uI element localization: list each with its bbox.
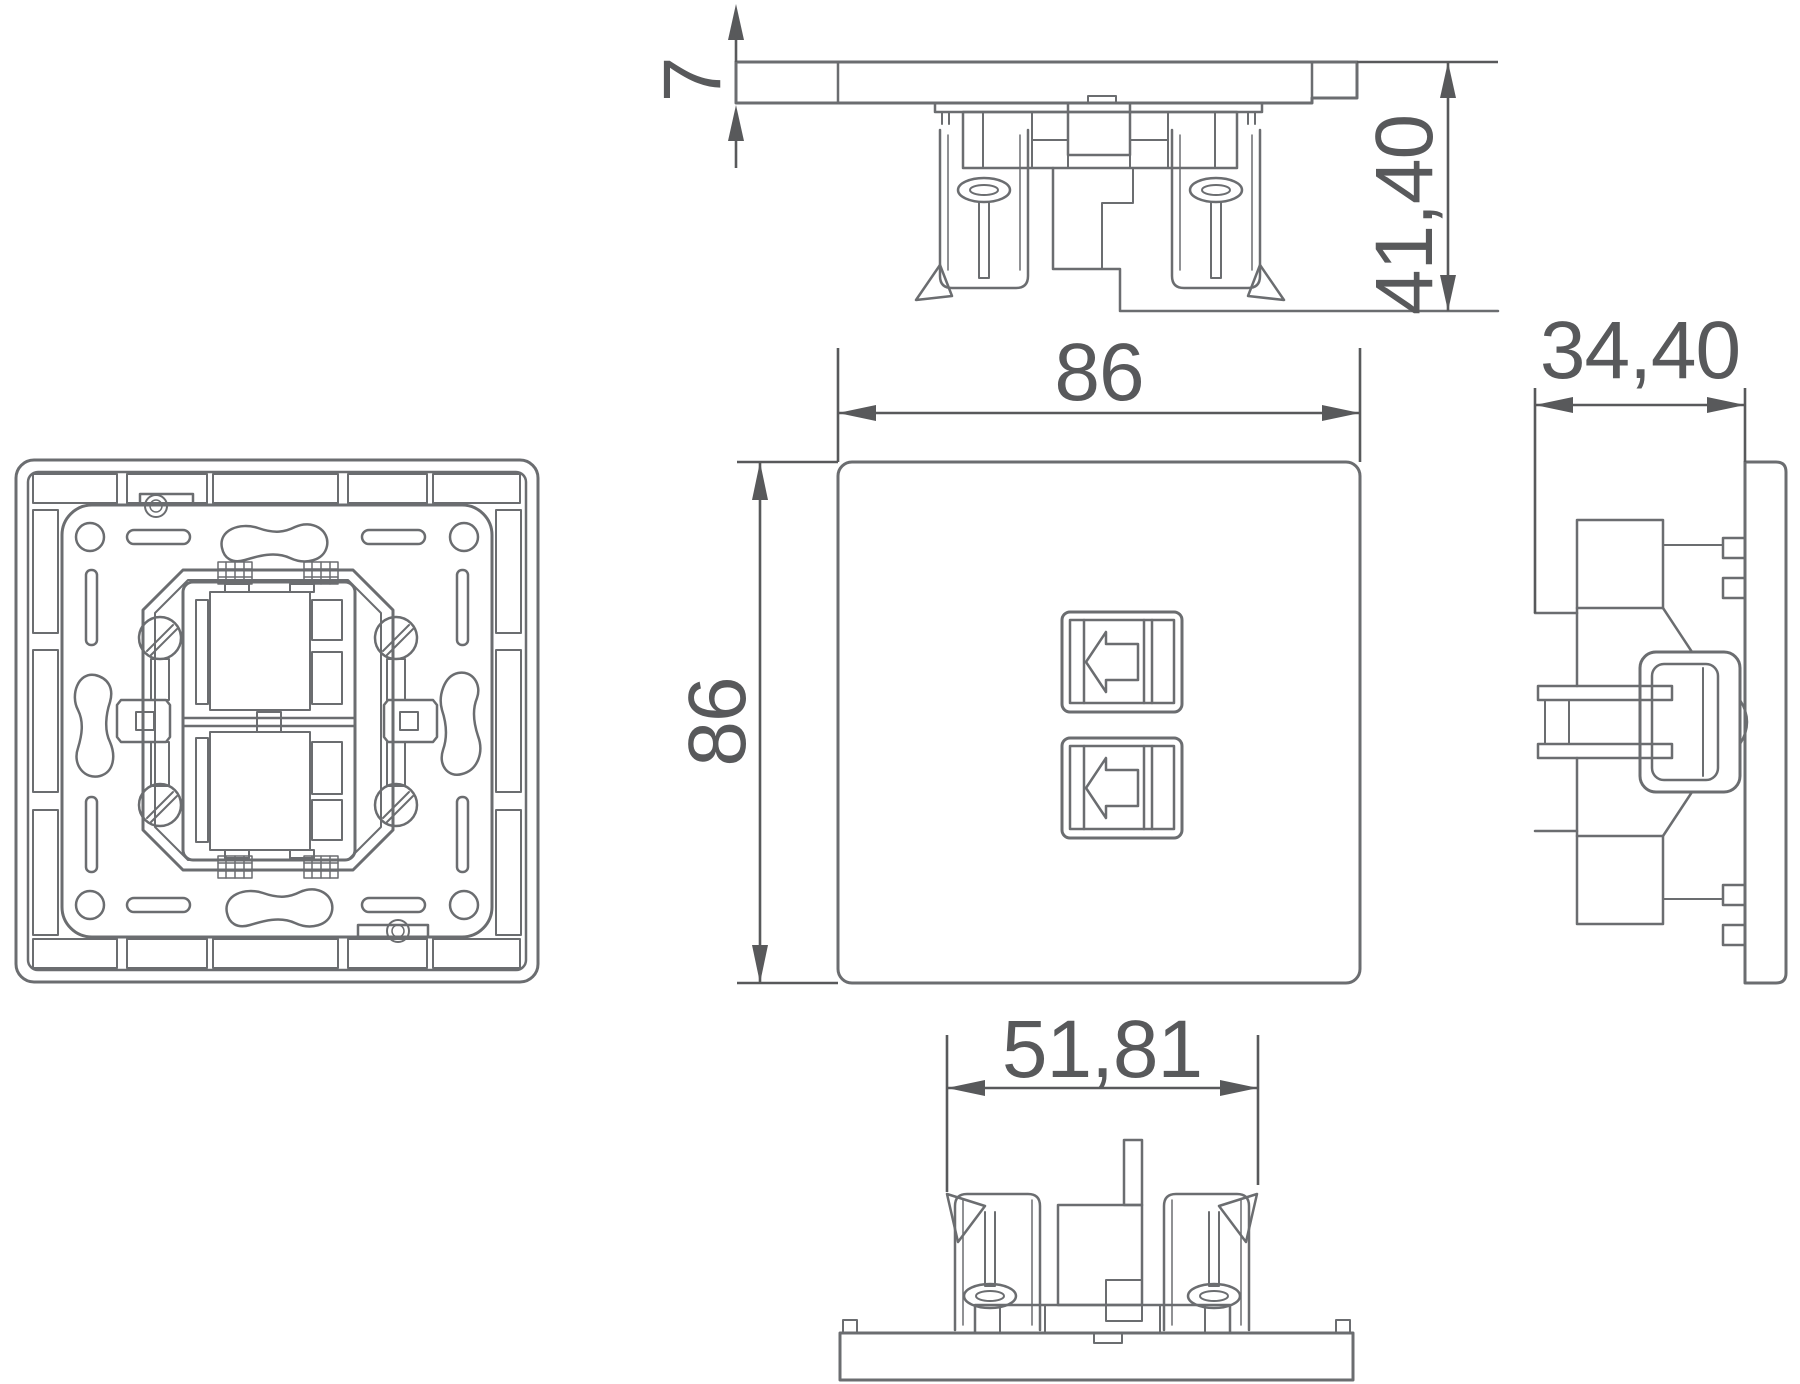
- dim-mount-depth: 41,40: [1357, 62, 1498, 315]
- back-view-hatch-tabs: [218, 562, 338, 878]
- left-arrow-icon: [1086, 758, 1138, 818]
- dim-plate-width: 86: [838, 327, 1360, 462]
- dim-label-plate-width: 86: [1054, 327, 1143, 418]
- side-view-plate: [1745, 462, 1786, 983]
- side-view: [1535, 462, 1786, 983]
- dim-label-claw-span: 51,81: [1002, 1004, 1202, 1095]
- switch-dimension-drawing: 7 41,40: [0, 0, 1800, 1384]
- dim-claw-span: 51,81: [947, 1004, 1258, 1192]
- bottom-view-center-block: [1058, 1205, 1142, 1305]
- dim-label-total-depth: 34,40: [1540, 305, 1740, 396]
- side-view-cam-head: [1640, 652, 1740, 792]
- top-view-claw-right: [1172, 130, 1284, 300]
- dim-label-plate-thickness: 7: [647, 58, 738, 103]
- side-view-body-upper: [1577, 520, 1663, 608]
- back-view-cams: [117, 700, 437, 742]
- rocker-button-up: [1062, 612, 1182, 712]
- bottom-view-plate: [840, 1333, 1353, 1380]
- dim-plate-height: 86: [672, 462, 838, 983]
- front-view: [838, 462, 1360, 983]
- bottom-view-claw-right: [1164, 1194, 1257, 1330]
- back-view-plate: [16, 460, 538, 982]
- dim-label-plate-height: 86: [672, 677, 763, 766]
- side-view-body-lower: [1577, 836, 1663, 924]
- back-view-mechanism: [183, 582, 355, 860]
- top-view-claw-left: [916, 130, 1028, 300]
- dim-total-depth: 34,40: [1535, 305, 1745, 613]
- screw-head-icon: [958, 178, 1010, 202]
- front-plate: [838, 462, 1360, 983]
- technical-drawing: 7 41,40: [0, 0, 1800, 1384]
- bottom-view-base: [975, 1305, 1230, 1333]
- bottom-view: [840, 1140, 1353, 1380]
- top-view-plate: [736, 62, 1357, 103]
- back-view: [16, 460, 538, 982]
- left-arrow-icon: [1086, 632, 1138, 692]
- screw-head-icon: [1190, 178, 1242, 202]
- back-view-screws: [139, 617, 417, 826]
- dim-label-mount-depth: 41,40: [1359, 115, 1450, 315]
- rocker-button-down: [1062, 738, 1182, 838]
- dim-plate-thickness: 7: [647, 4, 744, 168]
- top-view-mechanism-body: [963, 112, 1237, 168]
- bottom-view-claw-left: [947, 1194, 1040, 1330]
